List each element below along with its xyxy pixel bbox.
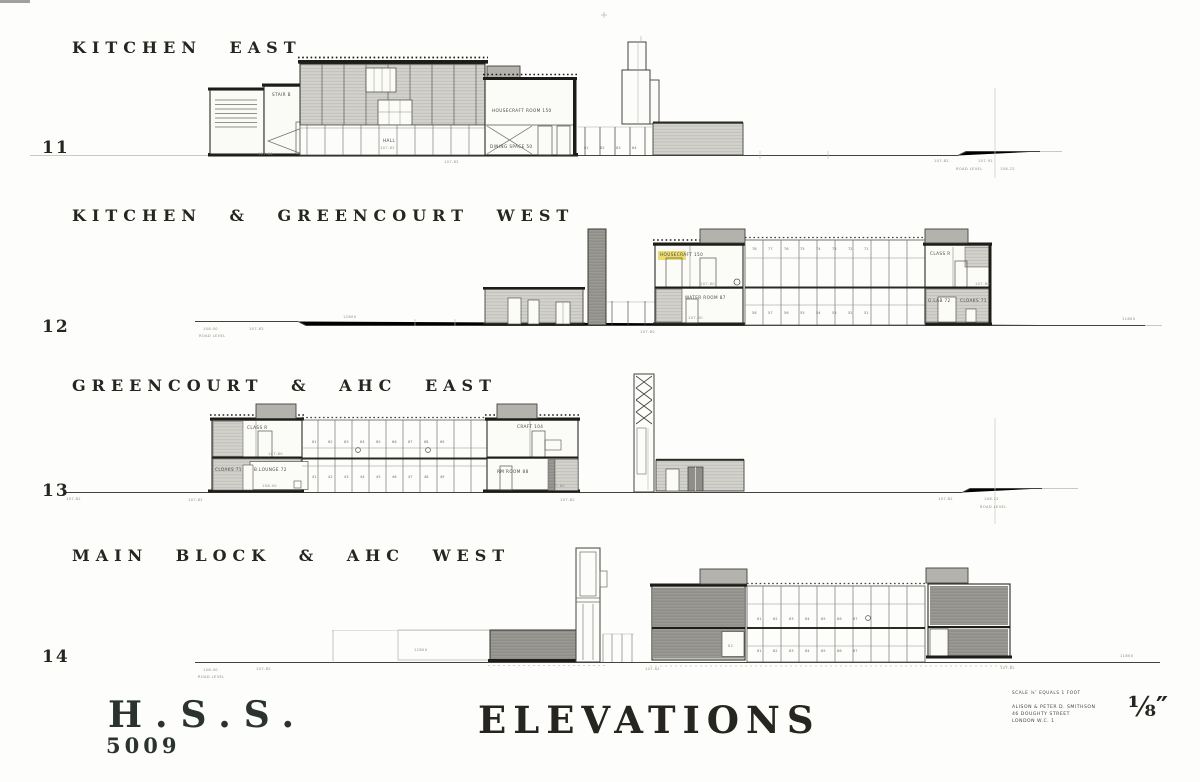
architect-city: LONDON W.C. 1	[1012, 718, 1095, 725]
drawing-annotation: CLASS R	[930, 251, 951, 256]
sheet-title: ELEVATIONS	[478, 698, 821, 742]
drawing-annotation: 108.00	[262, 484, 277, 488]
drawing-annotation: 107.80	[550, 484, 565, 488]
drawing-annotation: STAIR B	[272, 92, 291, 97]
drawing-annotation: 107.80	[268, 452, 283, 456]
drawing-annotation: 61 62 63 64 65 66 67 68 69	[312, 440, 445, 444]
drawing-annotation: RM ROOM 88	[497, 469, 529, 474]
drawing-annotation: HALL	[383, 138, 395, 143]
drawing-annotation: ROAD LEVEL	[199, 334, 226, 338]
drawing-annotation: 12800	[343, 315, 356, 319]
drawing-annotation: 107.80	[975, 282, 990, 286]
drawing-annotation: CLOAKS 71	[960, 298, 987, 303]
drawing-annotation: 107.80	[640, 330, 655, 334]
drawing-annotation: 107.80	[688, 316, 703, 320]
drawing-annotation: 107.82	[1000, 666, 1015, 670]
drawing-annotation: CLASS R	[247, 425, 268, 430]
drawing-annotation: ROAD LEVEL	[198, 675, 225, 679]
drawing-annotation: 81 82 83 84 85 86 87	[757, 649, 858, 653]
drawing-annotation: CRAFT 104	[517, 424, 543, 429]
drawing-annotation: 78 77 76 75 74 73 72 71	[752, 247, 869, 251]
drawing-annotation: 107.82	[66, 497, 81, 501]
drawing-annotation: 107.82	[256, 667, 271, 671]
drawing-annotation: 41 42 43 44 45 46 47 48 49	[312, 475, 445, 479]
drawing-annotation: G.LAB 72	[928, 298, 951, 303]
drawing-annotation: 107.82	[934, 159, 949, 163]
drawing-annotation: ROAD LEVEL	[980, 505, 1007, 509]
drawing-annotation: 11800	[1122, 317, 1135, 321]
drawing-annotation: WATER ROOM 87	[685, 295, 726, 300]
architect-street: 46 DOUGHTY STREET	[1012, 711, 1095, 718]
drawing-annotation: 108.22	[984, 497, 999, 501]
annotation-layer: STAIR BHALL107.82HOUSECRAFT ROOM 150DINI…	[0, 0, 1200, 782]
drawing-annotation: 12800	[414, 648, 427, 652]
drawing-annotation: 108.00	[203, 668, 218, 672]
drawing-annotation: 108.22	[1000, 167, 1015, 171]
drawing-annotation: 107.92	[978, 159, 993, 163]
drawing-annotation: 61 62 63 64	[584, 146, 637, 150]
drawing-annotation: ROAD LEVEL	[956, 167, 983, 171]
drawing-annotation: 107.82	[188, 498, 203, 502]
credits-block: SCALE ⅛″ EQUALS 1 FOOT ALISON & PETER D.…	[1012, 690, 1095, 725]
drawing-annotation: HOUSECRAFT ROOM 150	[492, 108, 552, 113]
architect-name: ALISON & PETER D. SMITHSON	[1012, 704, 1095, 711]
drawing-annotation: 61 62 63 64 65 66 67	[757, 617, 858, 621]
scale-fraction: ⅛″	[1128, 692, 1168, 723]
drawing-annotation: 108.00	[203, 327, 218, 331]
drawing-annotation: 107.82	[380, 146, 395, 150]
drawing-annotation: 107.82	[444, 160, 459, 164]
drawing-annotation: 107.82	[249, 327, 264, 331]
scale-note: SCALE ⅛″ EQUALS 1 FOOT	[1012, 690, 1095, 695]
drawing-annotation: HOUSECRAFT 150	[660, 252, 703, 257]
drawing-annotation: 107.82	[645, 667, 660, 671]
drawing-annotation: 107.82	[938, 497, 953, 501]
drawing-annotation: B.LOUNGE 72	[254, 467, 287, 472]
drawing-annotation: 82	[728, 644, 733, 648]
scanned-elevation-sheet: { "sheet": {"background": "#fdfdfb", "in…	[0, 0, 1200, 782]
drawing-annotation: 107.80	[258, 152, 273, 156]
drawing-annotation: 107.82	[560, 498, 575, 502]
project-code: H.S.S.	[108, 694, 307, 736]
drawing-annotation: DINING SPACE 50	[490, 144, 532, 149]
drawing-annotation: 107.80	[700, 282, 715, 286]
drawing-annotation: 58 57 56 55 54 53 52 51	[752, 311, 869, 315]
drawing-number: 5009	[106, 733, 180, 758]
drawing-annotation: 11800	[1120, 654, 1133, 658]
drawing-annotation: CLOAKS 71	[215, 467, 242, 472]
